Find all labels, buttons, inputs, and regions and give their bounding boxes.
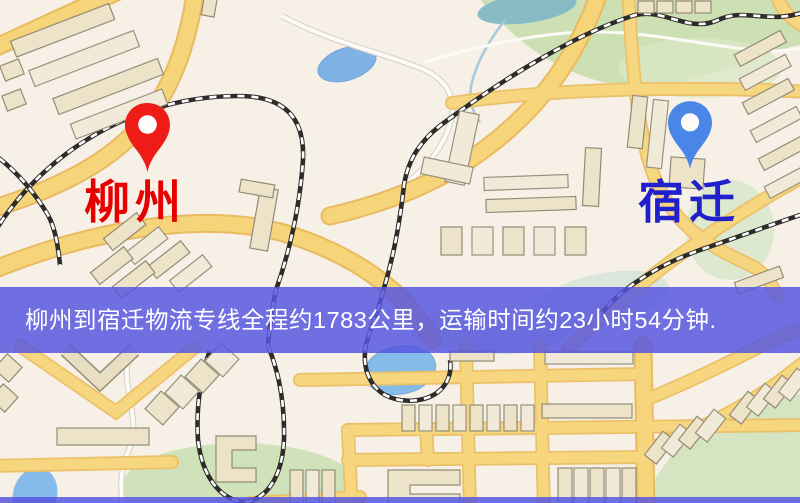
origin-pin-hole [138, 115, 157, 134]
map-view[interactable]: 柳州 宿迁 柳州到宿迁物流专线全程约1783公里，运输时间约23小时54分钟. [0, 0, 800, 503]
destination-pin-hole [681, 113, 699, 131]
destination-pin-icon[interactable] [668, 100, 712, 170]
origin-city-label: 柳州 [84, 180, 186, 226]
map-artwork [0, 0, 800, 503]
bottom-overlay-strip [0, 497, 800, 503]
route-banner-text: 柳州到宿迁物流专线全程约1783公里，运输时间约23小时54分钟. [25, 307, 717, 333]
destination-city-label: 宿迁 [638, 180, 740, 226]
origin-pin-icon[interactable] [125, 103, 170, 172]
route-banner: 柳州到宿迁物流专线全程约1783公里，运输时间约23小时54分钟. [0, 287, 800, 353]
